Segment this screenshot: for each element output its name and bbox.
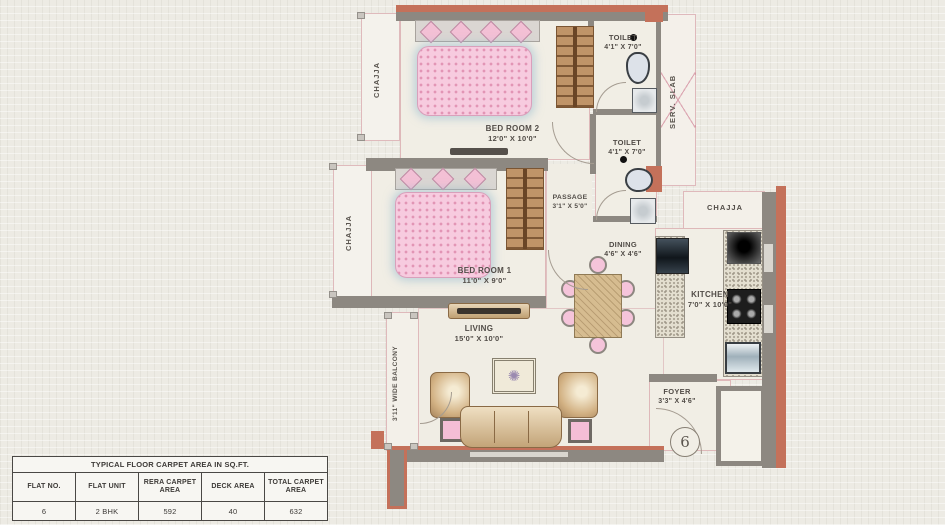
kitchen-dims: 7'0" X 10'0": [676, 300, 744, 310]
col-header-total-carpet: TOTAL CARPET AREA: [265, 473, 328, 502]
kitchen-name: KITCHEN: [691, 290, 729, 299]
column-block: [384, 443, 392, 450]
bedroom2-label: BED ROOM 2 12'0" X 10'0": [440, 124, 585, 144]
toilet-mid-cistern-icon: [620, 156, 627, 163]
bedroom2-name: BED ROOM 2: [486, 124, 540, 133]
column-block: [384, 312, 392, 319]
cell-total-carpet: 632: [265, 502, 328, 521]
floor-plan-canvas: ✺ 6 BED ROOM 2 12'0" X 10'0" TOILET 4'1"…: [0, 0, 945, 525]
living-label: LIVING 15'0" X 10'0": [440, 324, 518, 344]
col-header-rera-carpet: RERA CARPET AREA: [139, 473, 202, 502]
living-name: LIVING: [465, 324, 493, 333]
sink-icon: [725, 342, 761, 374]
bedroom1-dims: 11'0" X 9'0": [412, 276, 557, 286]
foyer-name: FOYER: [663, 387, 690, 396]
toilet-top-name: TOILET: [609, 33, 637, 42]
lift-shaft: [716, 386, 766, 466]
carpet-area-table-title: TYPICAL FLOOR CARPET AREA IN SQ.FT.: [13, 457, 328, 473]
toilet-top-shower: [632, 88, 657, 113]
right-wall-accent: [776, 186, 786, 468]
top-wall-accent: [396, 5, 668, 12]
chajja-right-label: CHAJJA: [690, 203, 760, 213]
sofa-seam: [494, 411, 495, 443]
side-table-right: [568, 419, 592, 443]
toilet-mid-name: TOILET: [613, 138, 641, 147]
toilet-mid-dims: 4'1" X 7'0": [596, 148, 658, 157]
kitchen-appliance-icon: [656, 238, 689, 274]
bottom-left-column: [390, 450, 404, 506]
column-block: [357, 134, 365, 141]
living-tv-console: [448, 303, 530, 319]
balcony-label: 3'11" WIDE BALCONY: [392, 328, 399, 438]
cell-rera-carpet: 592: [139, 502, 202, 521]
sofa: [460, 406, 562, 448]
passage-name: PASSAGE: [553, 194, 588, 201]
bedroom2-wardrobe: [556, 26, 594, 108]
foyer-label: FOYER 3'3" X 4'6": [648, 387, 706, 406]
service-slab-strip: [660, 14, 696, 186]
toilet-mid-wc-icon: [625, 168, 653, 192]
passage-label: PASSAGE 3'1" X 5'0": [542, 194, 598, 211]
cell-flat-unit: 2 BHK: [76, 502, 139, 521]
bed-1: [395, 168, 497, 280]
toilet-mid-label: TOILET 4'1" X 7'0": [596, 138, 658, 157]
toilet-mid-shower: [630, 198, 656, 224]
fridge-icon: [727, 232, 761, 264]
foyer-dims: 3'3" X 4'6": [648, 397, 706, 406]
carpet-area-table: TYPICAL FLOOR CARPET AREA IN SQ.FT. FLAT…: [12, 456, 328, 521]
toilet-top-label: TOILET 4'1" X 7'0": [592, 33, 654, 52]
bedroom2-dims: 12'0" X 10'0": [440, 134, 585, 144]
sofa-seam: [528, 411, 529, 443]
col-header-flat-unit: FLAT UNIT: [76, 473, 139, 502]
service-slab-top-accent: [645, 6, 663, 22]
living-dims: 15'0" X 10'0": [440, 334, 518, 344]
column-block: [410, 312, 418, 319]
flat-number-text: 6: [680, 433, 690, 451]
service-slab-label: SERV. SLAB: [668, 52, 677, 152]
col-header-flat-no: FLAT NO.: [13, 473, 76, 502]
col-header-deck-area: DECK AREA: [202, 473, 265, 502]
toilet-top-dims: 4'1" X 7'0": [592, 43, 654, 52]
kitchen-window-1: [764, 244, 773, 272]
column-block: [357, 12, 365, 19]
balcony-floor: [386, 312, 419, 451]
foyer-top-wall: [649, 374, 717, 382]
kitchen-label: KITCHEN 7'0" X 10'0": [676, 290, 744, 310]
dining-label: DINING 4'6" X 4'6": [594, 240, 652, 259]
center-rug: ✺: [492, 358, 536, 394]
bedroom1-label: BED ROOM 1 11'0" X 9'0": [412, 266, 557, 286]
flat-number-marker: 6: [670, 427, 700, 457]
passage-dims: 3'1" X 5'0": [542, 203, 598, 211]
armchair-right: [558, 372, 598, 418]
bedroom1-name: BED ROOM 1: [458, 266, 512, 275]
bed-2: [415, 20, 540, 120]
column-block: [410, 443, 418, 450]
column-block: [329, 291, 337, 298]
bedroom2-tv-unit: [450, 148, 508, 155]
column-block: [329, 163, 337, 170]
bed-2-blanket: [417, 46, 532, 116]
dining-chair: [589, 336, 607, 354]
cell-deck-area: 40: [202, 502, 265, 521]
dining-name: DINING: [609, 240, 637, 249]
chajja-mid-left-label: CHAJJA: [344, 193, 353, 273]
cell-flat-no: 6: [13, 502, 76, 521]
living-window-sill: [470, 452, 568, 457]
chajja-top-left-label: CHAJJA: [372, 40, 381, 120]
floor-plan-page: { "plan": { "rooms": { "bedroom2": {"nam…: [0, 0, 945, 525]
bedroom1-wardrobe: [506, 168, 544, 250]
dining-dims: 4'6" X 4'6": [594, 250, 652, 259]
kitchen-window-2: [764, 305, 773, 333]
balcony-end-accent: [371, 431, 384, 449]
